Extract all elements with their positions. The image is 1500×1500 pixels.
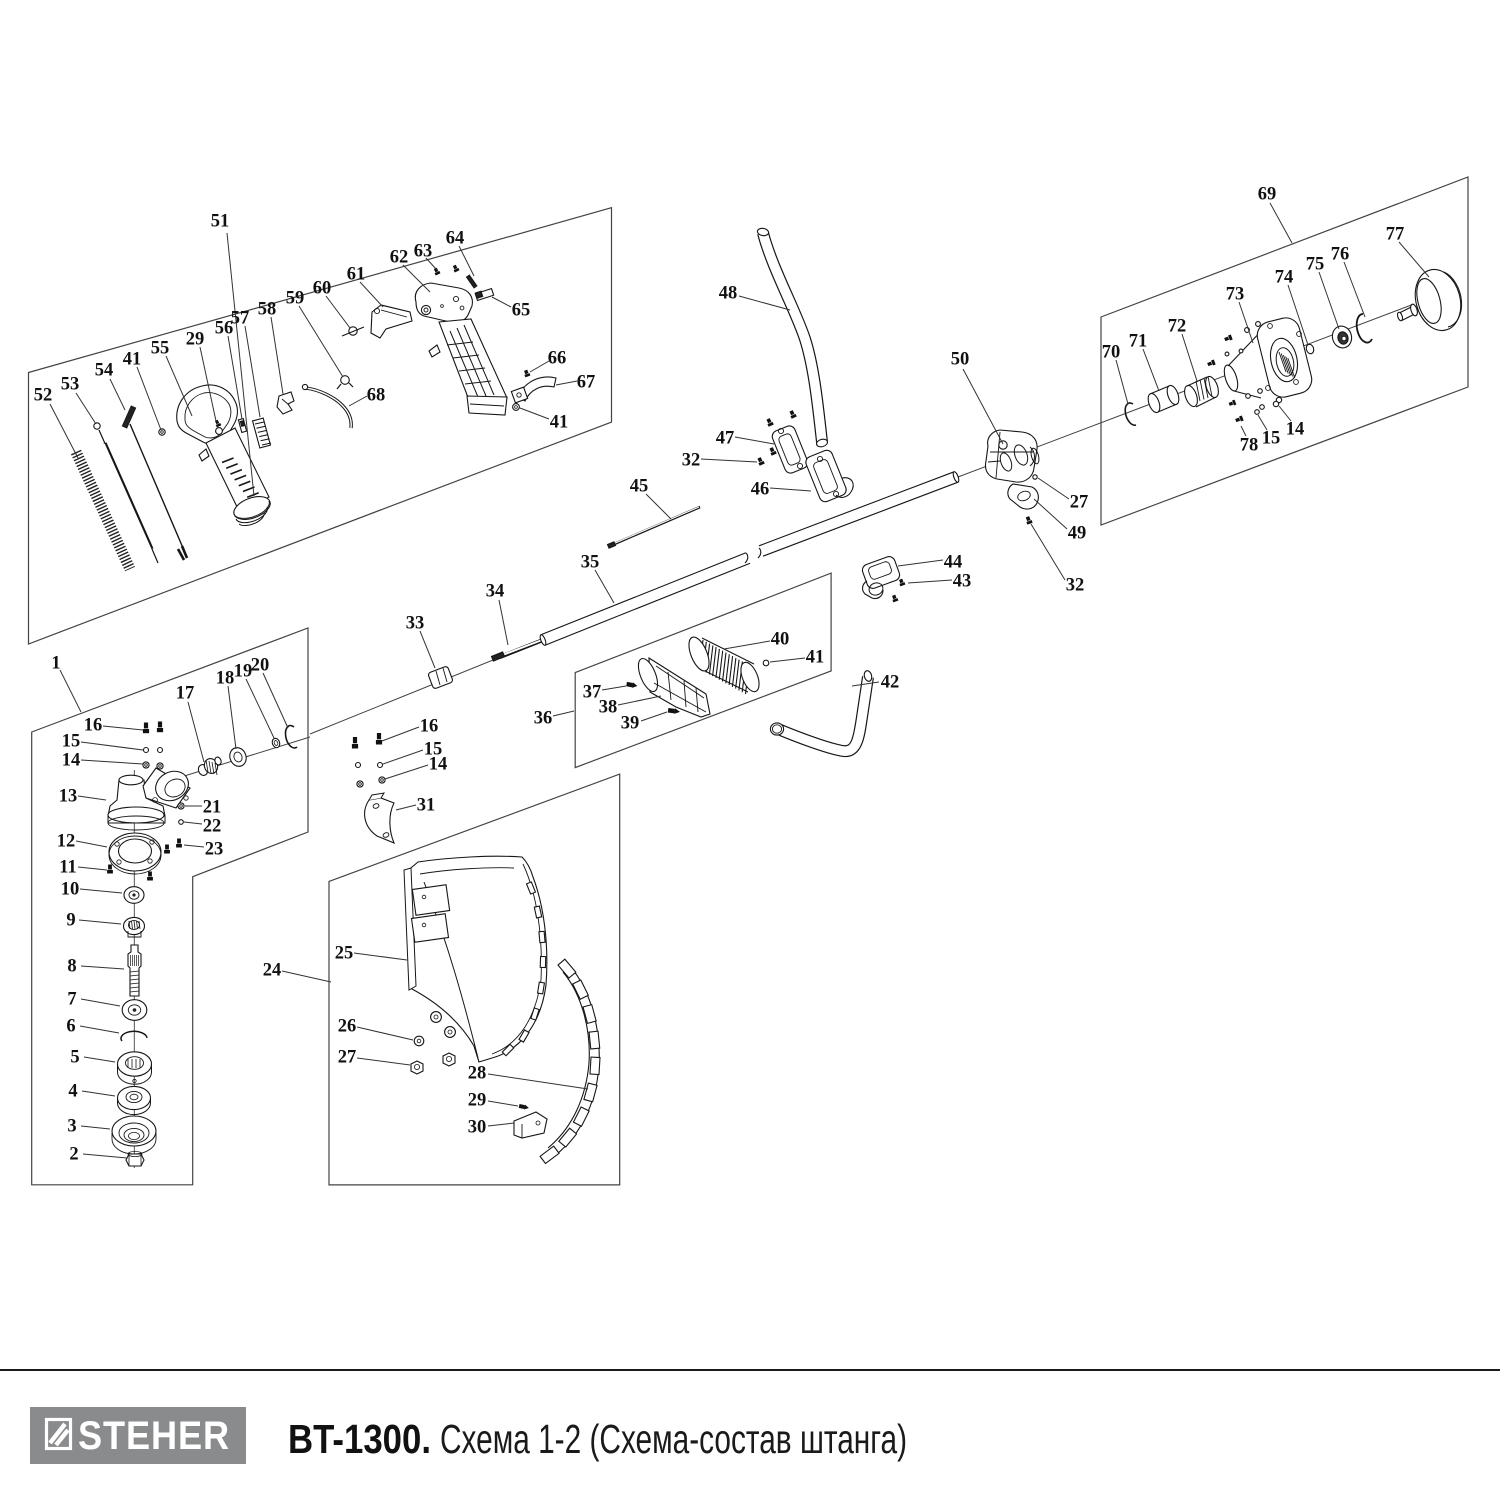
svg-text:67: 67 bbox=[577, 373, 596, 393]
svg-text:14: 14 bbox=[62, 751, 81, 771]
svg-text:54: 54 bbox=[95, 361, 114, 381]
svg-text:18: 18 bbox=[216, 669, 235, 689]
svg-text:41: 41 bbox=[550, 413, 569, 433]
svg-text:30: 30 bbox=[468, 1118, 487, 1138]
svg-text:14: 14 bbox=[1286, 420, 1305, 440]
svg-text:40: 40 bbox=[771, 630, 790, 650]
svg-text:16: 16 bbox=[84, 716, 103, 736]
svg-text:27: 27 bbox=[1070, 493, 1089, 513]
svg-text:35: 35 bbox=[581, 553, 600, 573]
svg-text:24: 24 bbox=[263, 961, 282, 981]
svg-text:61: 61 bbox=[347, 265, 366, 285]
svg-text:2: 2 bbox=[69, 1145, 78, 1165]
svg-text:69: 69 bbox=[1258, 185, 1277, 205]
svg-text:59: 59 bbox=[286, 289, 305, 309]
svg-text:62: 62 bbox=[390, 248, 409, 268]
svg-text:33: 33 bbox=[406, 614, 425, 634]
svg-text:77: 77 bbox=[1386, 225, 1405, 245]
svg-text:20: 20 bbox=[251, 656, 270, 676]
svg-text:42: 42 bbox=[881, 673, 900, 693]
svg-text:76: 76 bbox=[1331, 245, 1350, 265]
svg-text:16: 16 bbox=[420, 717, 439, 737]
svg-text:15: 15 bbox=[62, 732, 81, 752]
svg-text:7: 7 bbox=[67, 990, 76, 1010]
svg-text:15: 15 bbox=[1262, 429, 1281, 449]
svg-text:BT-1300.: BT-1300. bbox=[288, 1416, 431, 1462]
svg-text:45: 45 bbox=[630, 477, 649, 497]
svg-text:34: 34 bbox=[486, 582, 505, 602]
svg-text:28: 28 bbox=[468, 1064, 487, 1084]
svg-text:36: 36 bbox=[534, 709, 553, 729]
svg-text:8: 8 bbox=[67, 957, 76, 977]
svg-text:4: 4 bbox=[68, 1082, 77, 1102]
svg-text:48: 48 bbox=[719, 284, 738, 304]
svg-text:23: 23 bbox=[205, 840, 224, 860]
svg-text:1: 1 bbox=[51, 654, 60, 674]
svg-text:57: 57 bbox=[231, 309, 250, 329]
svg-text:29: 29 bbox=[468, 1091, 487, 1111]
svg-text:5: 5 bbox=[70, 1048, 79, 1068]
svg-text:66: 66 bbox=[548, 349, 567, 369]
svg-text:63: 63 bbox=[414, 242, 433, 262]
svg-text:41: 41 bbox=[806, 648, 825, 668]
svg-text:68: 68 bbox=[367, 386, 386, 406]
svg-text:70: 70 bbox=[1102, 343, 1121, 363]
svg-text:52: 52 bbox=[34, 386, 53, 406]
svg-text:Схема 1-2 (Схема-состав штанга: Схема 1-2 (Схема-состав штанга) bbox=[440, 1416, 907, 1462]
svg-text:11: 11 bbox=[59, 858, 76, 878]
svg-text:6: 6 bbox=[66, 1017, 75, 1037]
svg-text:71: 71 bbox=[1129, 332, 1148, 352]
svg-text:46: 46 bbox=[751, 480, 770, 500]
svg-text:39: 39 bbox=[621, 714, 640, 734]
svg-text:27: 27 bbox=[338, 1048, 357, 1068]
svg-text:43: 43 bbox=[953, 572, 972, 592]
svg-text:75: 75 bbox=[1306, 255, 1325, 275]
svg-text:32: 32 bbox=[1066, 576, 1085, 596]
svg-text:51: 51 bbox=[211, 212, 230, 232]
svg-text:31: 31 bbox=[417, 796, 436, 816]
svg-text:25: 25 bbox=[335, 944, 354, 964]
svg-text:58: 58 bbox=[258, 300, 277, 320]
svg-text:STEHER: STEHER bbox=[78, 1414, 230, 1458]
svg-text:13: 13 bbox=[59, 787, 78, 807]
svg-text:74: 74 bbox=[1275, 268, 1294, 288]
svg-text:22: 22 bbox=[203, 817, 222, 837]
svg-text:21: 21 bbox=[203, 798, 222, 818]
svg-text:12: 12 bbox=[57, 832, 76, 852]
svg-text:10: 10 bbox=[61, 880, 80, 900]
svg-text:73: 73 bbox=[1226, 285, 1245, 305]
svg-text:38: 38 bbox=[599, 698, 618, 718]
svg-text:60: 60 bbox=[313, 279, 332, 299]
svg-text:9: 9 bbox=[66, 911, 75, 931]
svg-text:72: 72 bbox=[1168, 317, 1187, 337]
svg-text:55: 55 bbox=[151, 339, 170, 359]
svg-text:19: 19 bbox=[234, 662, 253, 682]
svg-text:14: 14 bbox=[429, 755, 448, 775]
svg-text:65: 65 bbox=[512, 301, 531, 321]
svg-text:32: 32 bbox=[682, 451, 701, 471]
svg-text:41: 41 bbox=[123, 350, 142, 370]
svg-text:44: 44 bbox=[944, 553, 963, 573]
svg-text:17: 17 bbox=[176, 684, 195, 704]
svg-text:78: 78 bbox=[1240, 436, 1259, 456]
svg-text:29: 29 bbox=[186, 330, 205, 350]
svg-text:26: 26 bbox=[338, 1017, 357, 1037]
svg-text:50: 50 bbox=[951, 350, 970, 370]
svg-text:53: 53 bbox=[61, 375, 80, 395]
svg-text:49: 49 bbox=[1068, 524, 1087, 544]
svg-text:47: 47 bbox=[716, 429, 735, 449]
svg-text:3: 3 bbox=[67, 1117, 76, 1137]
svg-text:64: 64 bbox=[446, 229, 465, 249]
